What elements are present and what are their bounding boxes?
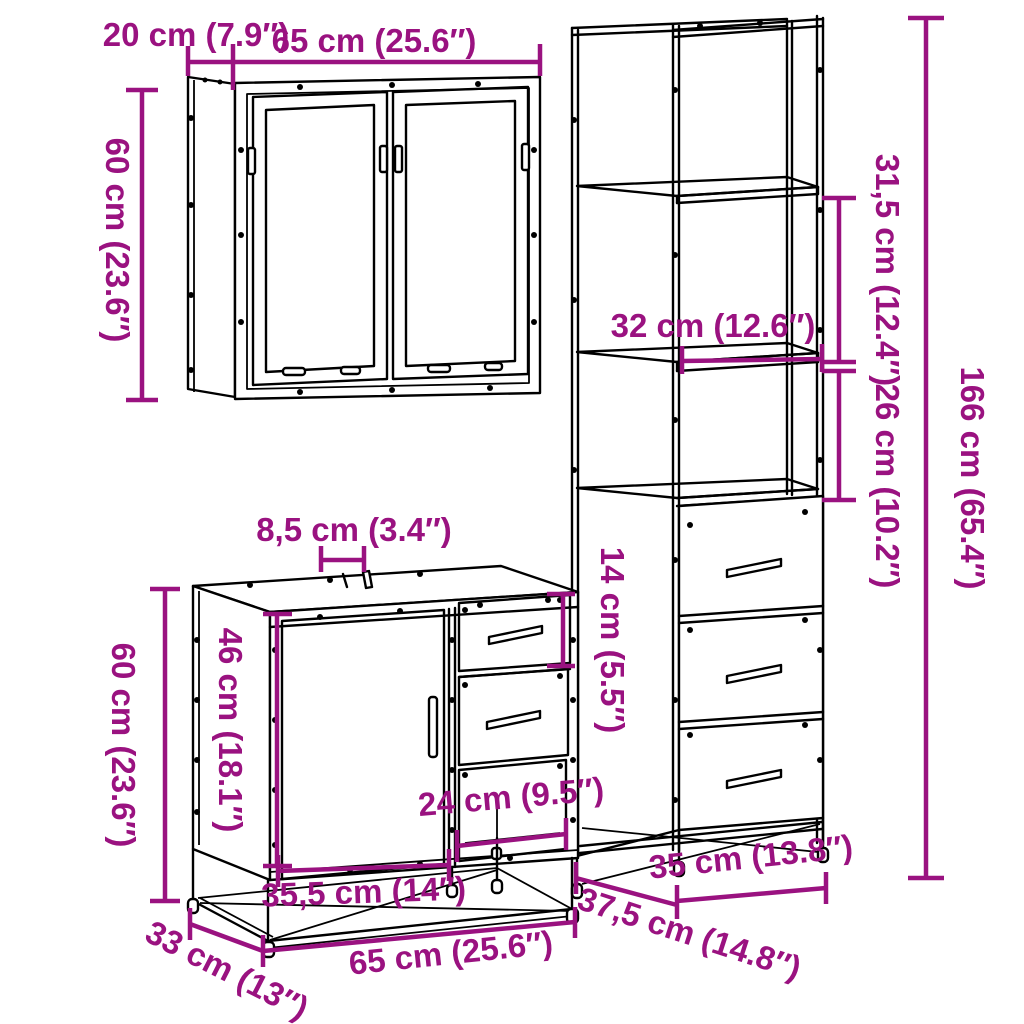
label-mirror-height: 60 cm (23.6″) [99, 138, 136, 343]
mirror-door-left-hinge [248, 148, 255, 174]
furniture-dimension-diagram: 20 cm (7.9″) 65 cm (25.6″) 60 cm (23.6″)… [0, 0, 1024, 1024]
label-vanity-depth: 33 cm (13″) [140, 913, 315, 1024]
label-tall-height: 166 cm (65.4″) [954, 366, 991, 589]
vanity-door-handle [429, 697, 437, 757]
vanity-top-gap-tab [363, 571, 372, 588]
label-mirror-width: 65 cm (25.6″) [272, 22, 477, 59]
label-tall-shelf-width: 32 cm (12.6″) [611, 307, 816, 344]
label-tall-depth: 37,5 cm (14.8″) [573, 880, 805, 987]
mirror-door-right-hinge [522, 144, 529, 170]
mirror-door-right-handle [395, 146, 402, 172]
tall-cabinet-drawing [571, 16, 828, 898]
mirror-door-damper [341, 367, 360, 374]
tall-shelf-upper [577, 177, 818, 203]
mirror-door-damper [485, 363, 502, 370]
label-vanity-drawer-height: 14 cm (5.5″) [594, 547, 631, 733]
mirror-door-damper [428, 365, 450, 372]
label-tall-upper-gap: 31,5 cm (12.4″) [869, 154, 906, 386]
label-mirror-depth: 20 cm (7.9″) [103, 16, 289, 53]
mirror-cabinet-drawing [188, 77, 540, 399]
label-vanity-top-gap: 8,5 cm (3.4″) [256, 511, 452, 548]
mirror-cabinet-side [188, 77, 235, 397]
label-vanity-door-width: 35,5 cm (14″) [261, 869, 467, 913]
label-vanity-inner-height: 46 cm (18.1″) [212, 628, 249, 833]
mirror-door-left-handle [380, 146, 387, 172]
diagram-page: 20 cm (7.9″) 65 cm (25.6″) 60 cm (23.6″)… [0, 0, 1024, 1024]
mirror-door-damper [283, 368, 305, 375]
label-tall-lower-gap: 26 cm (10.2″) [869, 384, 906, 589]
label-vanity-height: 60 cm (23.6″) [105, 643, 142, 848]
tall-shelf-middle [577, 343, 818, 371]
